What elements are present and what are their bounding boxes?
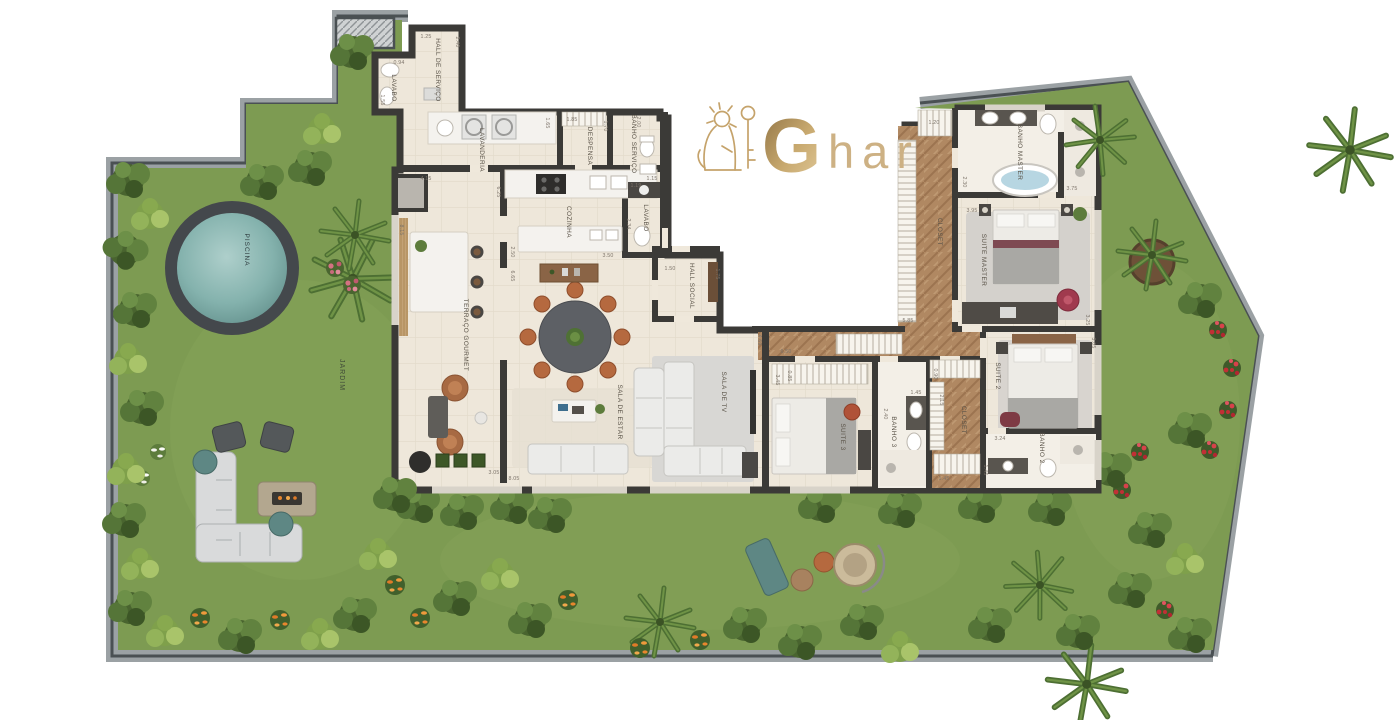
sofa (528, 444, 628, 474)
room-label: HALL SOCIAL (688, 263, 695, 309)
dim: 2.00 (635, 116, 641, 127)
floorplan-svg: PISCINA JARDIM (0, 0, 1400, 720)
plant (1073, 207, 1087, 221)
room-label: COZINHA (565, 206, 572, 238)
dim: 1.70 (602, 120, 608, 131)
room-label: TERRAÇO GOURMET (462, 299, 469, 371)
dim: 8.15 (398, 224, 404, 235)
bench (858, 430, 871, 470)
room-label: BANHO 2 (1038, 432, 1045, 463)
garden-label: JARDIM (338, 359, 345, 391)
dim: 1.45 (982, 464, 988, 475)
dim: 2.40 (882, 408, 888, 419)
dim: 3.75 (1066, 186, 1077, 192)
tv-console (742, 452, 758, 478)
room-label: DESPENSA (586, 127, 593, 166)
dim: 3.05 (1090, 337, 1096, 348)
dim: 1.20 (928, 120, 939, 126)
dim: 1.75 (714, 268, 720, 279)
room-label: BANHO MASTER (1016, 124, 1023, 181)
dim: 2.30 (961, 176, 967, 187)
chaise (634, 368, 664, 456)
dim: 8.05 (508, 476, 519, 482)
logo-letter-g: G (762, 104, 821, 189)
room-label: LAVABO (390, 74, 397, 101)
dim: 1.50 (664, 266, 675, 272)
counter-plant (415, 240, 427, 252)
room-label: SALA DE ESTAR (616, 384, 623, 439)
dim: 3.05 (488, 470, 499, 476)
room-label: LAVABO (642, 204, 649, 231)
pool: PISCINA (165, 201, 299, 335)
dim: 3.95 (966, 208, 977, 214)
dim: 1.65 (544, 117, 550, 128)
dim: 3.25 (1084, 314, 1090, 325)
ottoman (1000, 412, 1020, 427)
dim: 1.45 (910, 390, 921, 396)
dim: 2.15 (938, 394, 944, 405)
dim: 6.50 (780, 349, 791, 355)
dim: 1.19 (630, 183, 641, 189)
dim: 3.45 (774, 374, 780, 385)
suite3-furniture (772, 398, 871, 474)
accent-pouf (844, 404, 860, 420)
dim: 4.69 (756, 334, 762, 345)
wood-sideboard (540, 264, 598, 282)
laundry (428, 112, 556, 144)
dim: 3.24 (994, 436, 1005, 442)
pool-label: PISCINA (243, 233, 250, 266)
dim: 1.25 (420, 34, 431, 40)
dim: 1.85 (566, 117, 577, 123)
dim: 5.85 (902, 318, 913, 324)
suite2-furniture (996, 334, 1092, 428)
headboard (1012, 334, 1076, 344)
dim: 1.15 (646, 176, 657, 182)
dim: 0.94 (393, 60, 404, 66)
tv-screen (750, 370, 756, 434)
room-label: SUITE MASTER (980, 234, 987, 287)
dim: 2.50 (509, 246, 515, 257)
room-label: LAVANDERIA (478, 128, 485, 172)
dim: 0.90 (932, 368, 938, 379)
dim: 6.65 (509, 270, 515, 281)
room-label: SUITE 2 (994, 362, 1001, 389)
dim: 2.40 (454, 36, 460, 47)
dining-set (520, 282, 630, 392)
room-label: SALA DE TV (720, 372, 727, 413)
floorplan-canvas: PISCINA JARDIM (0, 0, 1400, 720)
dim: 3.50 (602, 253, 613, 259)
room-label: BANHO 3 (890, 416, 897, 447)
room-label: HALL DE SERVIÇO (434, 38, 441, 102)
logo-text: har (828, 125, 920, 178)
dim: 2.34 (625, 218, 631, 229)
dim: 6.25 (495, 186, 501, 197)
room-label: CLOSET (960, 406, 967, 434)
room-label: SUITE 3 (839, 423, 846, 450)
dim: 1.55 (379, 94, 385, 105)
side-console (428, 396, 448, 438)
grill (409, 451, 431, 473)
dim: 0.85 (786, 370, 792, 381)
dim: 1.45 (938, 476, 949, 482)
room-label: CLOSET (936, 218, 943, 246)
dim: 4.15 (420, 176, 431, 182)
small-table (475, 412, 487, 424)
